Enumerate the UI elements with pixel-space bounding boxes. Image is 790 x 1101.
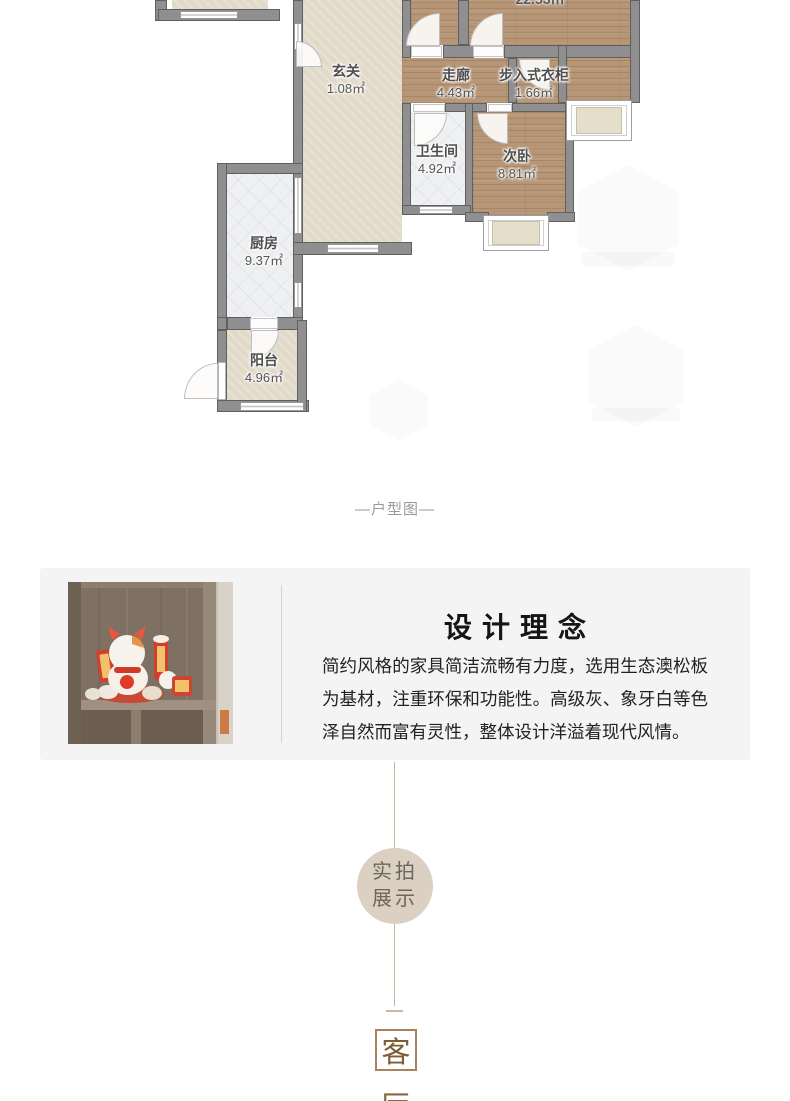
window [419, 206, 453, 214]
design-photo-lucky-cat [68, 582, 233, 744]
floorplan-structure [576, 107, 622, 134]
window [240, 402, 304, 411]
floorplan-structure [217, 163, 303, 174]
floorplan-structure [458, 0, 469, 45]
floorplan-structure [504, 45, 640, 58]
door-arc [184, 363, 218, 399]
room-floor-topleft-balcony [172, 0, 268, 9]
floorplan-structure [217, 163, 227, 323]
floorplan-structure [582, 252, 674, 266]
room-label-master-area-partial: 22.53㎡ [515, 0, 564, 9]
badge-line1: 实拍 [372, 859, 418, 886]
badge-live-photos: 实拍 展示 [357, 848, 433, 924]
room-label-bathroom: 卫生间4.92㎡ [416, 142, 458, 178]
watermark-logo [370, 380, 428, 440]
floorplan-structure [443, 45, 474, 58]
room-label-corridor: 走廊4.43㎡ [437, 66, 475, 102]
floorplan-structure [592, 408, 680, 421]
window [327, 244, 379, 253]
room-label-entry: 玄关1.08㎡ [327, 62, 365, 98]
room-label-balcony: 阳台4.96㎡ [245, 351, 283, 387]
room-label-closet: 步入式衣柜1.66㎡ [499, 66, 569, 102]
door-threshold [413, 104, 445, 112]
window [294, 177, 302, 234]
window [180, 11, 238, 19]
room-label-kitchen: 厨房9.37㎡ [245, 234, 283, 270]
page: 玄关1.08㎡ 走廊4.43㎡ 步入式衣柜1.66㎡ 卫生间4.92㎡ 次卧8.… [0, 0, 790, 1101]
floorplan-structure [465, 103, 473, 215]
section-marker-char1: 客 [375, 1029, 417, 1071]
badge-line2: 展示 [372, 886, 418, 913]
room-floor-entry [302, 0, 402, 243]
floorplan: 玄关1.08㎡ 走廊4.43㎡ 步入式衣柜1.66㎡ 卫生间4.92㎡ 次卧8.… [0, 0, 790, 440]
panel-divider [281, 585, 282, 743]
window [294, 282, 302, 308]
door-threshold [250, 318, 278, 329]
floorplan-structure [492, 221, 540, 245]
design-paragraph: 简约风格的家具简洁流畅有力度，选用生态澳松板为基材，注重环保和功能性。高级灰、象… [322, 650, 708, 749]
section-marker-char2: 厅 [380, 1083, 409, 1101]
room-label-bedroom2: 次卧8.81㎡ [498, 147, 536, 183]
floorplan-structure [217, 317, 227, 330]
floorplan-caption: —户型图— [355, 498, 435, 519]
floorplan-structure [227, 317, 251, 330]
door-threshold [488, 104, 512, 112]
door-threshold [411, 46, 442, 57]
design-title: 设计理念 [444, 606, 596, 646]
door-leaf [218, 362, 226, 400]
section-marker-char1-text: 客 [381, 1029, 410, 1071]
floorplan-structure [547, 212, 575, 222]
connector-line-top [394, 762, 395, 848]
lucky-cat-photo-graphic [68, 582, 233, 744]
door-threshold [473, 46, 504, 57]
design-concept-panel: 设计理念 简约风格的家具简洁流畅有力度，选用生态澳松板为基材，注重环保和功能性。… [40, 568, 750, 760]
floorplan-structure [297, 320, 307, 412]
connector-end-tick [386, 1010, 403, 1012]
floorplan-structure [630, 0, 640, 103]
floorplan-structure [402, 103, 411, 215]
connector-line-bottom [394, 924, 395, 1006]
